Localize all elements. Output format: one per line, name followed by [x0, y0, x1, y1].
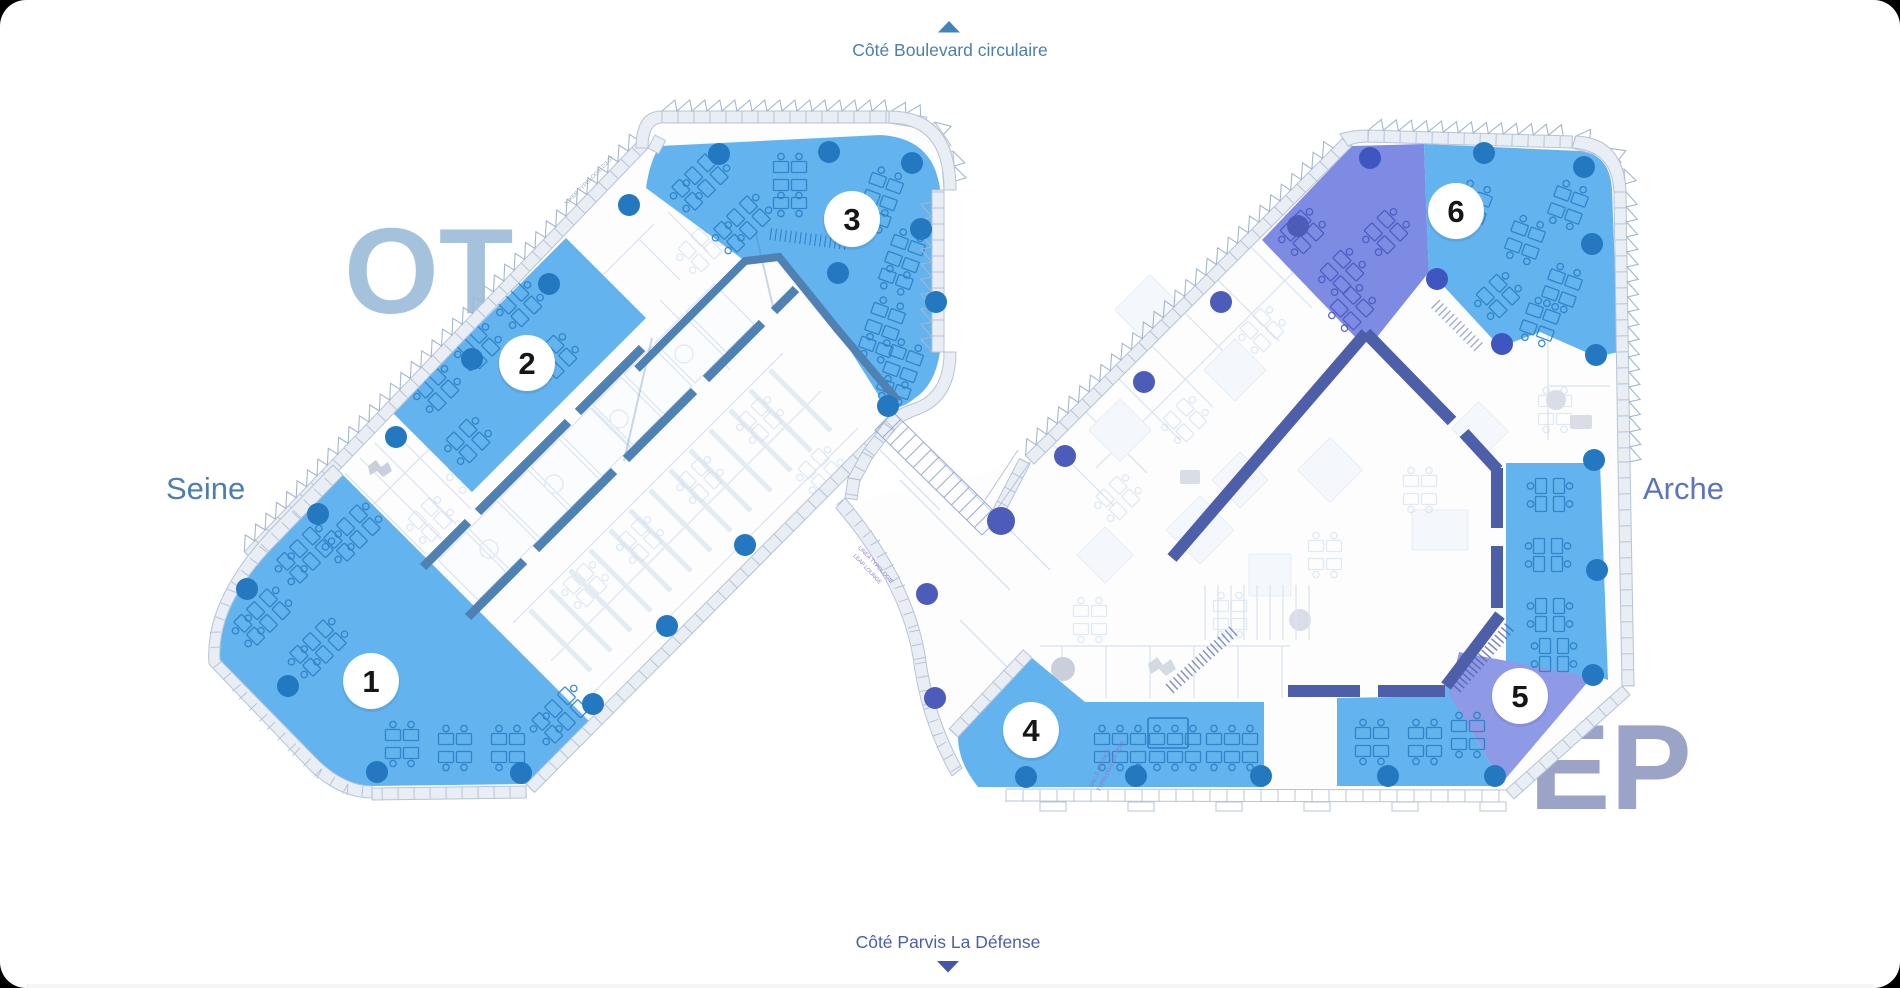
svg-text:2: 2: [518, 346, 535, 381]
svg-text:1: 1: [362, 664, 379, 699]
svg-text:Côté Parvis La Défense: Côté Parvis La Défense: [856, 932, 1041, 952]
svg-text:6: 6: [1447, 194, 1464, 229]
svg-text:Arche: Arche: [1643, 471, 1724, 506]
svg-text:4: 4: [1022, 713, 1040, 748]
svg-text:3: 3: [843, 202, 860, 237]
svg-text:Côté Boulevard circulaire: Côté Boulevard circulaire: [852, 40, 1048, 60]
svg-text:Seine: Seine: [166, 471, 245, 506]
svg-text:5: 5: [1511, 679, 1528, 714]
